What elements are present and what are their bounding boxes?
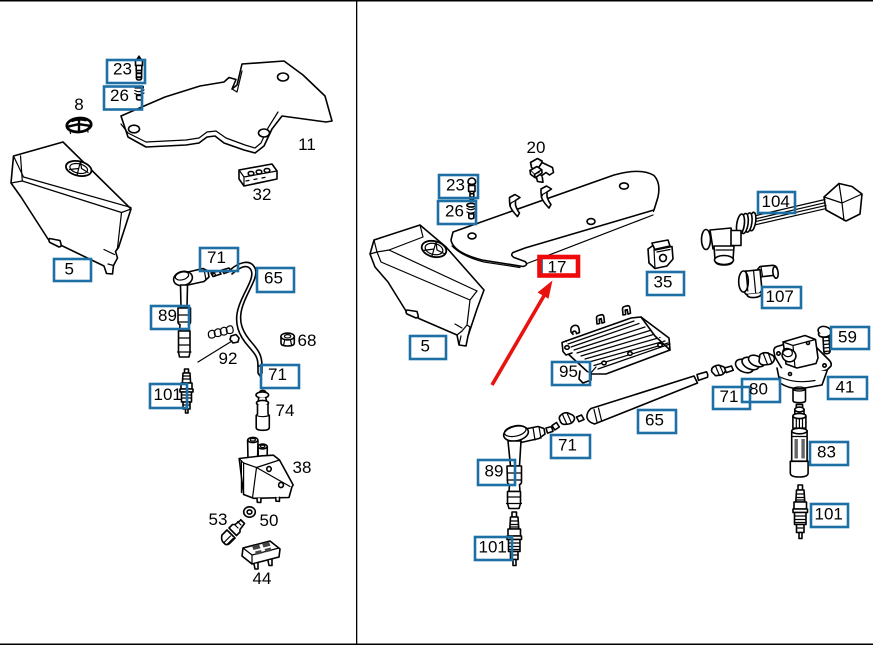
svg-text:20: 20	[527, 138, 546, 157]
svg-text:35: 35	[654, 273, 673, 292]
svg-text:26: 26	[445, 202, 464, 221]
svg-text:95: 95	[559, 362, 578, 381]
svg-text:32: 32	[253, 185, 272, 204]
svg-text:50: 50	[260, 511, 279, 530]
svg-text:71: 71	[207, 248, 226, 267]
svg-text:71: 71	[558, 436, 577, 455]
svg-text:101: 101	[154, 385, 182, 404]
svg-text:17: 17	[548, 258, 567, 277]
svg-text:92: 92	[219, 349, 238, 368]
svg-text:71: 71	[268, 365, 287, 384]
svg-text:8: 8	[74, 95, 83, 114]
svg-text:74: 74	[276, 401, 295, 420]
svg-text:89: 89	[485, 462, 504, 481]
svg-text:83: 83	[817, 443, 836, 462]
svg-text:80: 80	[749, 380, 768, 399]
svg-text:101: 101	[815, 505, 843, 524]
svg-text:65: 65	[645, 411, 664, 430]
svg-text:23: 23	[113, 60, 132, 79]
svg-text:23: 23	[446, 176, 465, 195]
svg-text:26: 26	[110, 86, 129, 105]
svg-text:65: 65	[264, 269, 283, 288]
svg-text:11: 11	[298, 135, 316, 154]
svg-text:5: 5	[65, 260, 74, 279]
svg-text:71: 71	[720, 387, 739, 406]
svg-text:59: 59	[838, 328, 857, 347]
svg-text:41: 41	[836, 378, 855, 397]
svg-text:44: 44	[253, 569, 272, 588]
svg-text:101: 101	[479, 538, 507, 557]
svg-text:104: 104	[762, 192, 790, 211]
svg-text:107: 107	[766, 287, 794, 306]
svg-text:5: 5	[421, 337, 430, 356]
svg-text:53: 53	[209, 510, 228, 529]
svg-text:38: 38	[293, 458, 312, 477]
svg-text:68: 68	[298, 331, 317, 350]
svg-text:89: 89	[158, 306, 177, 325]
